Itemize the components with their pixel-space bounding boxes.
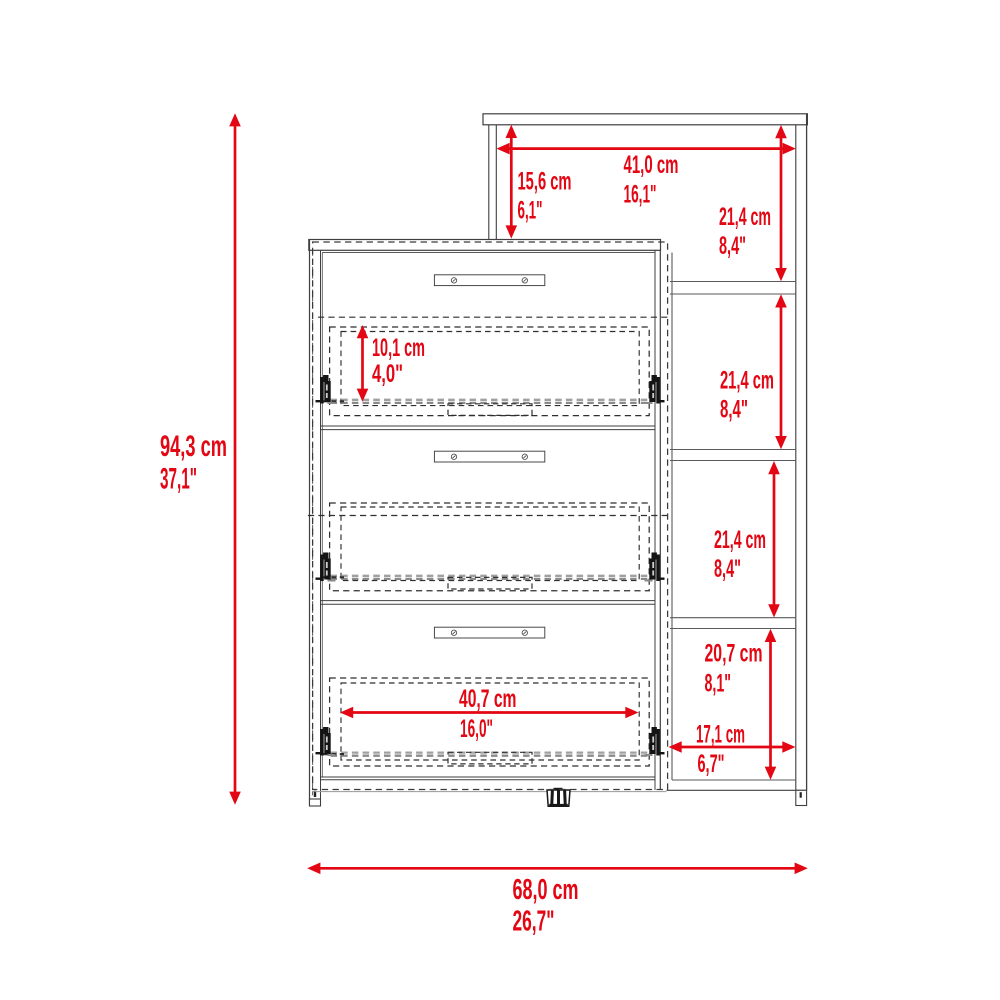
svg-text:26,7": 26,7" xyxy=(513,906,555,938)
svg-text:15,6 cm: 15,6 cm xyxy=(518,168,572,196)
svg-text:68,0 cm: 68,0 cm xyxy=(513,874,579,906)
svg-text:40,7 cm: 40,7 cm xyxy=(459,685,517,713)
svg-text:21,4 cm: 21,4 cm xyxy=(719,203,771,231)
svg-text:8,4": 8,4" xyxy=(719,232,746,260)
svg-text:94,3 cm: 94,3 cm xyxy=(160,430,227,463)
svg-text:6,1": 6,1" xyxy=(518,197,543,225)
svg-text:6,7": 6,7" xyxy=(698,750,725,778)
svg-text:8,4": 8,4" xyxy=(720,396,748,424)
svg-text:21,4 cm: 21,4 cm xyxy=(720,367,774,395)
svg-text:41,0 cm: 41,0 cm xyxy=(624,151,679,179)
svg-text:16,1": 16,1" xyxy=(624,181,657,209)
svg-text:20,7 cm: 20,7 cm xyxy=(705,640,763,668)
svg-text:16,0": 16,0" xyxy=(460,715,493,743)
svg-text:10,1 cm: 10,1 cm xyxy=(372,334,425,362)
svg-text:37,1": 37,1" xyxy=(160,463,197,496)
svg-text:4,0": 4,0" xyxy=(372,360,403,388)
svg-text:8,1": 8,1" xyxy=(705,670,732,698)
svg-text:21,4 cm: 21,4 cm xyxy=(714,526,766,554)
svg-text:17,1 cm: 17,1 cm xyxy=(696,721,745,749)
svg-text:8,4": 8,4" xyxy=(714,555,741,583)
